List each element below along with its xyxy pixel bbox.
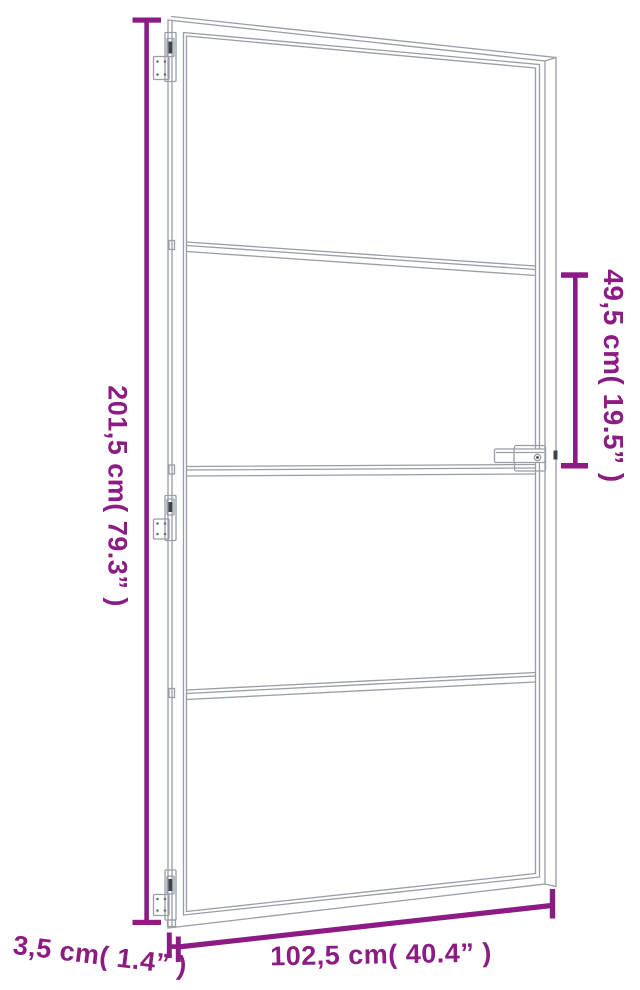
diagram-canvas: 201,5 cm( 79.3” ) 49,5 cm( 19.5” ) 102,5… [0, 0, 640, 990]
door-illustration [0, 0, 640, 990]
door-outline [168, 17, 556, 929]
handle-section-dimension-line [561, 272, 588, 468]
handle-section-dimension-label: 49,5 cm( 19.5” ) [599, 269, 627, 482]
glass-rail-top [169, 241, 536, 276]
width-dimension-line [178, 889, 555, 947]
glass-rail-middle [169, 465, 536, 477]
height-dimension-line [133, 18, 162, 926]
door-handle [495, 446, 558, 472]
glass-rail-bottom [169, 673, 536, 700]
width-dimension-label: 102,5 cm( 40.4” ) [270, 940, 492, 971]
height-dimension-label: 201,5 cm( 79.3” ) [104, 385, 131, 607]
